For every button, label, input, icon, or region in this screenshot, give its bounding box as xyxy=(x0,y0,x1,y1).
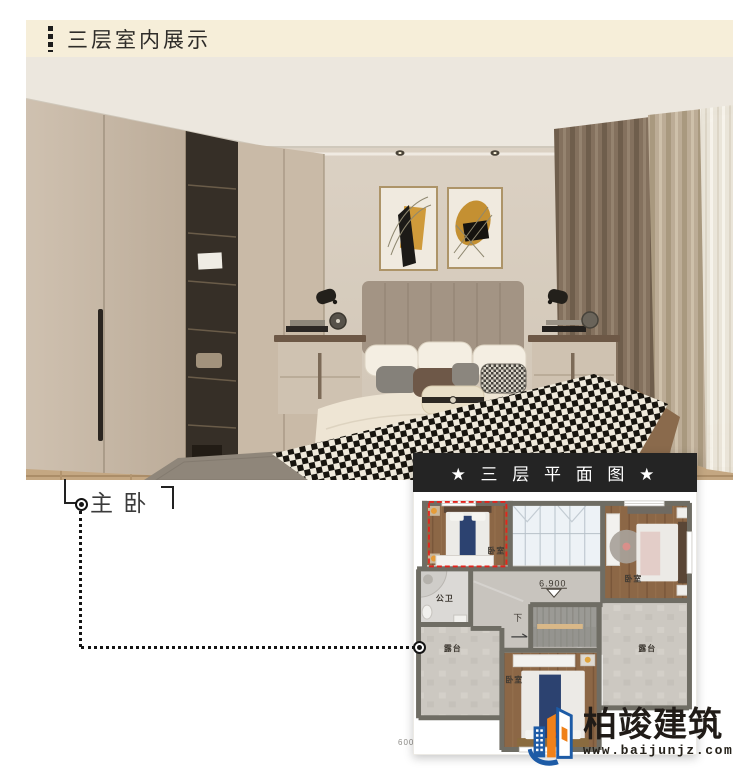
room-bathroom: 公卫 xyxy=(419,569,471,624)
company-logo: 柏竣建筑 www.baijunjz.com xyxy=(521,707,733,771)
room-master-bedroom: 卧室 xyxy=(426,505,510,567)
room-label: 卧室 xyxy=(505,675,523,685)
skylight xyxy=(510,503,602,566)
partial-elevation-text: 600 xyxy=(398,738,414,747)
wardrobe xyxy=(26,99,186,480)
section-title: 三层室内展示 xyxy=(67,24,211,54)
room-bedroom-2: 卧室 xyxy=(605,505,689,601)
page: 三层室内展示 xyxy=(0,0,750,783)
logo-website: www.baijunjz.com xyxy=(583,743,733,758)
section-header: 三层室内展示 xyxy=(26,20,733,57)
terrace-left: 露台 xyxy=(421,627,501,718)
callout-label: 主 卧 xyxy=(90,484,148,518)
room-label: 露台 xyxy=(638,643,656,653)
master-bedroom-photo xyxy=(26,57,733,480)
room-label: 公卫 xyxy=(436,594,454,603)
room-label: 露台 xyxy=(444,643,462,653)
room-label: 卧室 xyxy=(488,546,506,556)
callout-bracket-right xyxy=(161,486,174,509)
terrace-right: 露台 xyxy=(603,603,689,708)
open-shelving-unit xyxy=(186,131,238,477)
elevation-text: 6.900 xyxy=(539,578,566,588)
logo-company-name: 柏竣建筑 xyxy=(583,707,733,744)
wardrobe-right-doors xyxy=(238,142,324,469)
callout-anchor-dot xyxy=(75,498,88,511)
wall-art-left xyxy=(380,187,437,270)
dashed-line-icon xyxy=(48,26,53,52)
callout-line-horizontal xyxy=(81,646,415,649)
wall-art-right xyxy=(448,188,502,268)
logo-building-icon xyxy=(521,707,579,771)
plan-title-bar: ★ 三 层 平 面 图 ★ xyxy=(413,453,697,492)
stair-direction-label: 下 xyxy=(513,613,523,623)
plan-title: ★ 三 层 平 面 图 ★ xyxy=(451,460,660,485)
callout-line-vertical xyxy=(79,511,82,647)
plan-anchor-dot xyxy=(413,641,426,654)
room-label: 卧室 xyxy=(624,573,642,583)
